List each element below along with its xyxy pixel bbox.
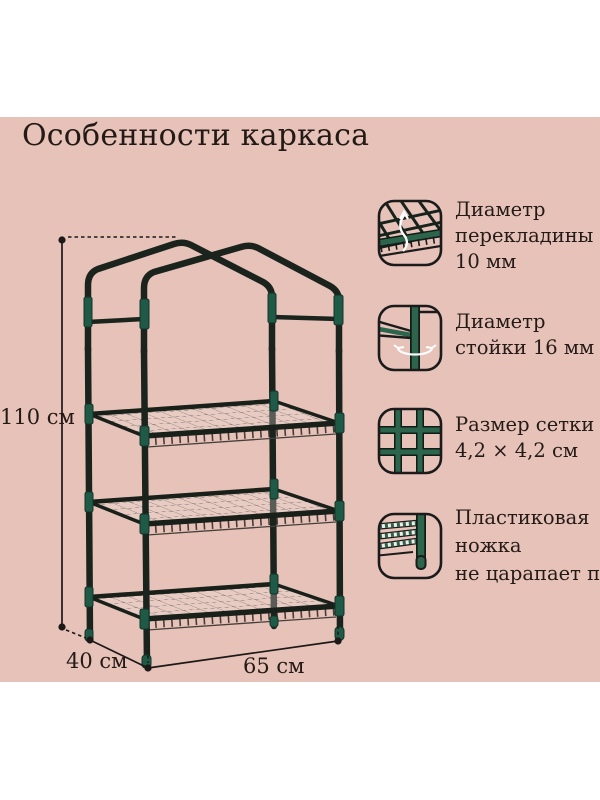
feature-line: Размер сетки	[455, 412, 600, 438]
shelf-bottom	[89, 584, 339, 630]
shelf-top	[89, 401, 339, 447]
feature-text-crossbar: Диаметр перекладины 10 мм	[455, 197, 600, 275]
post-diameter-icon	[377, 304, 443, 372]
height-dimension-label: 110 см	[0, 406, 58, 428]
product-infographic: { "title": "Особенности каркаса", "dimen…	[0, 0, 600, 800]
feature-text-foot: Пластиковая ножка не царапает пол	[455, 504, 600, 588]
crossbar-mesh-icon	[377, 199, 443, 267]
green-connectors	[84, 293, 344, 629]
feature-line: ножка	[455, 532, 600, 560]
feature-line: Диаметр	[455, 309, 600, 335]
feature-line: Диаметр	[455, 197, 600, 223]
mesh-size-icon	[377, 407, 443, 475]
rack-shelves	[89, 401, 339, 630]
feature-line: 4,2 × 4,2 см	[455, 438, 600, 464]
rack-back-frame	[88, 243, 339, 640]
feature-text-mesh: Размер сетки 4,2 × 4,2 см	[455, 412, 600, 464]
depth-dimension-label: 40 см	[66, 650, 124, 672]
plastic-foot-icon	[377, 512, 443, 580]
feature-line: 10 мм	[455, 249, 600, 275]
feature-line: стойки 16 мм	[455, 335, 600, 361]
width-dimension-label: 65 см	[243, 655, 303, 677]
shelf-middle	[89, 489, 339, 535]
feature-line: не царапает пол	[455, 560, 600, 588]
feature-text-post: Диаметр стойки 16 мм	[455, 309, 600, 361]
feature-line: перекладины	[455, 223, 600, 249]
feature-line: Пластиковая	[455, 504, 600, 532]
